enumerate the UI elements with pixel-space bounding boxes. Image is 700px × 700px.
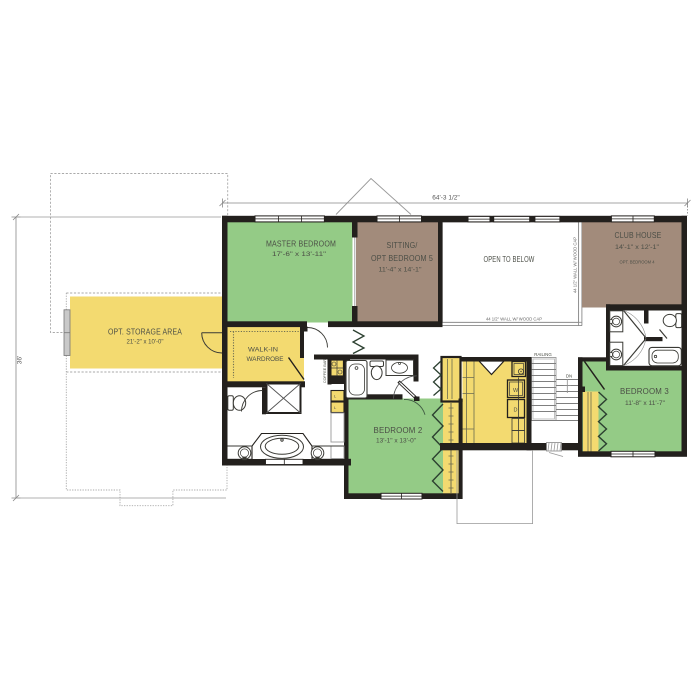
- svg-text:COFFEE BAR: COFFEE BAR: [323, 359, 327, 384]
- svg-text:SITTING/: SITTING/: [387, 240, 418, 250]
- svg-text:11'-4" x 14'-1": 11'-4" x 14'-1": [379, 267, 422, 274]
- svg-text:17'-6" x 13'-11": 17'-6" x 13'-11": [272, 251, 326, 258]
- svg-text:RAILING: RAILING: [534, 352, 552, 357]
- svg-text:BEDROOM 2: BEDROOM 2: [374, 425, 423, 435]
- svg-text:CLUB HOUSE: CLUB HOUSE: [615, 230, 662, 240]
- svg-text:MASTER BEDROOM: MASTER BEDROOM: [266, 239, 336, 249]
- svg-text:44 1/2" WALL W/ WOOD CAP: 44 1/2" WALL W/ WOOD CAP: [573, 237, 578, 293]
- svg-text:OPEN TO BELOW: OPEN TO BELOW: [484, 254, 535, 264]
- svg-text:BEDROOM 3: BEDROOM 3: [620, 386, 669, 396]
- svg-text:44 1/2" WALL W/ WOOD CAP: 44 1/2" WALL W/ WOOD CAP: [486, 317, 542, 322]
- svg-text:OPT. BEDROOM 4: OPT. BEDROOM 4: [620, 260, 655, 265]
- svg-text:WARDROBE: WARDROBE: [247, 356, 285, 363]
- svg-text:14'-1" x 12'-1": 14'-1" x 12'-1": [615, 244, 659, 251]
- svg-text:21'-2" x 10'-0": 21'-2" x 10'-0": [127, 339, 164, 346]
- svg-text:36': 36': [17, 356, 24, 364]
- svg-text:13'-1" x 13'-0": 13'-1" x 13'-0": [376, 438, 416, 445]
- svg-text:DN: DN: [566, 374, 572, 379]
- svg-text:11'-8" x 11'-7": 11'-8" x 11'-7": [625, 400, 665, 407]
- svg-text:D: D: [514, 408, 518, 414]
- svg-text:64'-3 1/2": 64'-3 1/2": [432, 195, 460, 202]
- svg-text:OPT BEDROOM 5: OPT BEDROOM 5: [371, 253, 433, 263]
- svg-text:WALK-IN: WALK-IN: [248, 347, 278, 354]
- svg-text:OPT. STORAGE AREA: OPT. STORAGE AREA: [108, 327, 182, 337]
